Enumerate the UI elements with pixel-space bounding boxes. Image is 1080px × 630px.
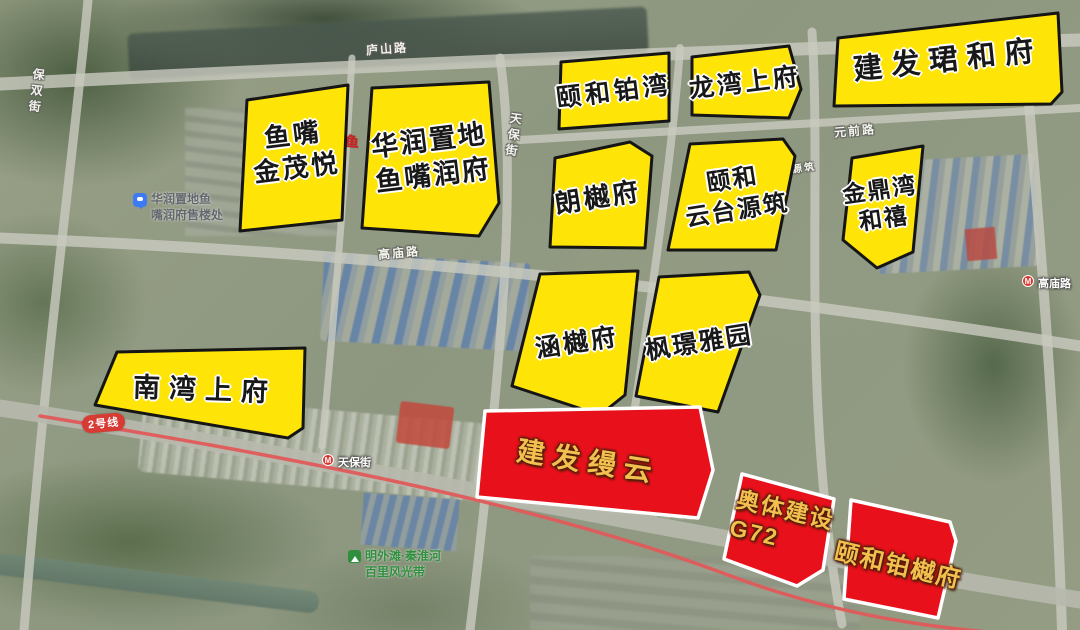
plot-polygon-yuzui-jinmaoyue[interactable] (240, 85, 348, 231)
terrain-blue-roof-cluster-bottom (360, 493, 459, 552)
park-poi[interactable]: 明外滩·秦淮河 百里风光带 (348, 549, 441, 580)
plot-polygon-huarun-runfu[interactable] (362, 82, 499, 236)
metro-station-icon[interactable]: M (322, 454, 334, 466)
satellite-map-canvas[interactable]: 保双街庐山路元前路天保街高庙路台源筑 国鱼 鱼嘴金茂悦华润置地鱼嘴润府颐和铂湾龙… (0, 0, 1080, 630)
sales-office-line-2: 嘴润府售楼处 (151, 208, 223, 222)
plot-polygon-longwan-shangfu[interactable] (692, 46, 801, 118)
park-icon[interactable] (348, 550, 361, 563)
park-line-1: 明外滩·秦淮河 (365, 549, 441, 563)
metro-station-name: 天保街 (338, 454, 371, 470)
terrain-red-building-east (965, 227, 998, 261)
park-label: 明外滩·秦淮河 百里风光带 (365, 549, 441, 580)
park-line-2: 百里风光带 (365, 565, 425, 579)
metro-station-name: 高庙路 (1038, 275, 1071, 291)
terrain-red-building-west (396, 401, 455, 449)
sales-office-label: 华润置地鱼 嘴润府售楼处 (151, 192, 223, 223)
sales-office-poi[interactable]: 华润置地鱼 嘴润府售楼处 (133, 192, 223, 223)
plot-polygon-jindingwan-hexi[interactable] (843, 146, 923, 268)
sales-office-pin-icon[interactable] (133, 193, 147, 207)
metro-station-gaomiao[interactable]: M 高庙路 (1022, 275, 1071, 291)
plot-polygon-yihe-yuntaiyuanzhu[interactable] (668, 139, 795, 250)
metro-station-icon[interactable]: M (1022, 275, 1034, 287)
plot-polygon-langyuefu[interactable] (550, 142, 652, 248)
plot-polygon-yihe-bowan[interactable] (559, 53, 669, 129)
terrain-blue-roof-cluster-mid (320, 253, 530, 352)
plot-polygon-jianfa-manyun[interactable] (477, 407, 713, 518)
metro-station-tianbao[interactable]: M 天保街 (322, 454, 371, 470)
sales-office-line-1: 华润置地鱼 (151, 192, 211, 206)
